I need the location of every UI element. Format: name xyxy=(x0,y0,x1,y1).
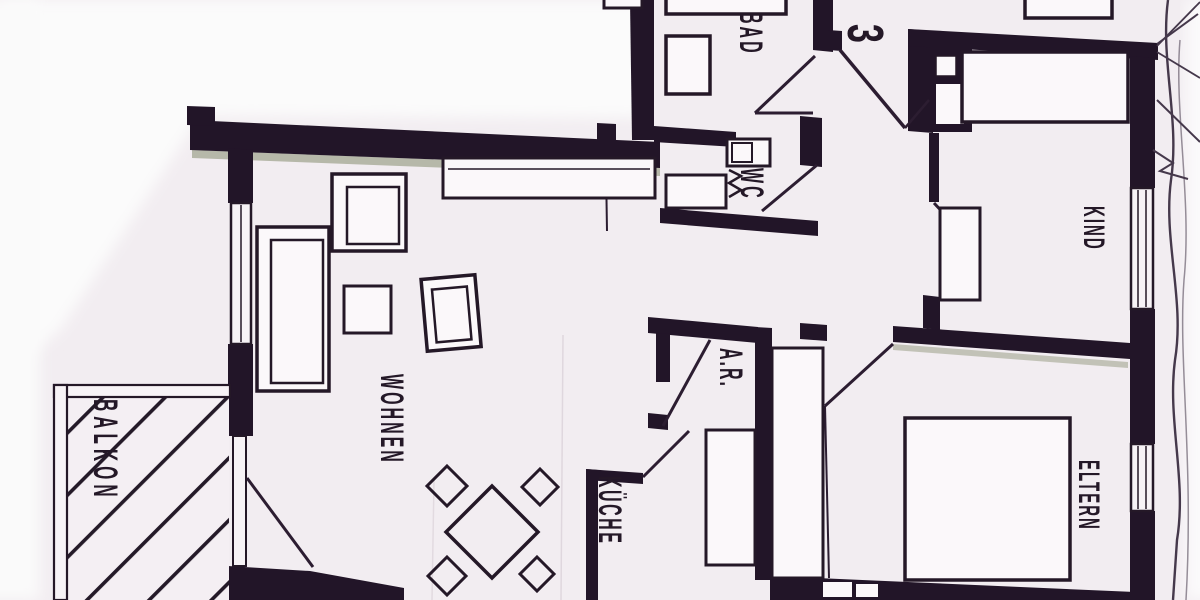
sideboard xyxy=(443,158,655,198)
room-label-text: WC xyxy=(733,168,768,201)
room-label-text: KIND xyxy=(1076,206,1109,251)
room-label-text: A.R. xyxy=(712,348,747,388)
shower xyxy=(666,36,710,94)
room-label-text: BAD xyxy=(732,12,767,56)
room-label-wohnen: WOHNEN xyxy=(373,374,408,465)
balcony-rail-left xyxy=(54,385,67,600)
kitchen-appliance xyxy=(823,582,852,597)
bed-eltern xyxy=(905,418,1070,580)
washbasin xyxy=(666,175,726,208)
floor-plan: WOHNEN KÜCHE BAD WC A.R. KIND ELTERN BAL… xyxy=(0,0,1200,600)
neighbor-bathtub xyxy=(1025,0,1112,18)
wall-left-upper xyxy=(228,148,253,203)
unit-number-label: 3 xyxy=(836,24,892,43)
room-label-ar: A.R. xyxy=(712,348,747,388)
wall-ar-left xyxy=(656,333,670,382)
armchair xyxy=(421,275,481,351)
room-label-eltern: ELTERN xyxy=(1071,460,1104,531)
window-eltern xyxy=(1131,444,1153,511)
wall-right-b xyxy=(1130,309,1155,444)
window-wohnen xyxy=(231,203,251,344)
scan-highlight-left xyxy=(0,0,40,600)
room-label-bad: BAD xyxy=(732,12,767,56)
window-kind xyxy=(1131,188,1153,309)
room-label-text: BALKON xyxy=(86,399,124,502)
shaft-opening xyxy=(936,84,964,124)
neighbor-fixture xyxy=(604,0,642,8)
wall-kind-stub xyxy=(923,295,940,330)
unit-number-text: 3 xyxy=(836,24,892,43)
side-table xyxy=(344,286,391,333)
bed-kind xyxy=(962,52,1128,122)
wall-kind-left-thin xyxy=(929,133,939,202)
room-label-text: ELTERN xyxy=(1071,460,1104,531)
room-label-kueche: KÜCHE xyxy=(591,476,628,545)
wardrobe-kind xyxy=(940,208,980,300)
wall-right-a xyxy=(1130,56,1155,188)
wall-bad-left xyxy=(630,0,654,140)
wall-left-mid xyxy=(228,344,253,436)
kitchen-appliance xyxy=(856,584,878,597)
wall-divider-stub-left xyxy=(800,323,827,341)
room-label-balkon: BALKON xyxy=(86,399,124,502)
sofa xyxy=(257,227,329,391)
wall-wc-right xyxy=(800,116,822,167)
shaft-opening xyxy=(936,56,956,76)
wall-kitchen-hall xyxy=(755,327,772,580)
room-label-text: KÜCHE xyxy=(591,476,628,545)
room-label-kind: KIND xyxy=(1076,206,1109,251)
balcony-rail-top xyxy=(54,385,230,397)
kitchen-counter xyxy=(706,430,755,565)
wall-hook-topleft xyxy=(187,106,215,126)
room-label-wc: WC xyxy=(733,168,768,201)
balcony xyxy=(54,385,230,600)
wall-right-c xyxy=(1130,511,1155,600)
room-label-text: WOHNEN xyxy=(373,374,408,465)
hall-closet xyxy=(772,348,823,578)
armchair xyxy=(332,174,406,251)
scanned-floor-plan-page: WOHNEN KÜCHE BAD WC A.R. KIND ELTERN BAL… xyxy=(0,0,1200,600)
